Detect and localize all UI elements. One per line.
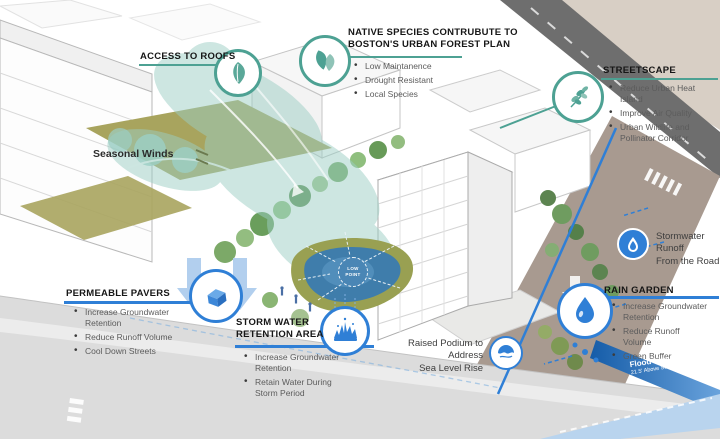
storm-water-title-line1: STORM WATER	[236, 317, 346, 329]
bullet-item: Cool Down Streets	[72, 346, 180, 357]
bullet-item: Increase Groundwater Retention	[72, 307, 180, 329]
rain-garden-title: RAIN GARDEN	[604, 285, 674, 297]
raised-podium-line1: Raised Podium to Address	[385, 338, 483, 363]
native-species-title-line2: BOSTON'S URBAN FOREST PLAN	[348, 39, 528, 51]
bullet-item: Retain Water During Storm Period	[242, 377, 350, 399]
raised-podium-label: Raised Podium to Address Sea Level Rise	[385, 338, 483, 375]
native-species-title-line1: NATIVE SPECIES CONTRUBUTE TO	[348, 27, 528, 39]
bullet-item: Improve Air Quality	[607, 108, 719, 119]
stormwater-runoff-line1: Stormwater Runoff	[656, 231, 720, 256]
storm-water-title-line2: RETENTION AREA	[236, 329, 346, 341]
stormwater-runoff-label: Stormwater Runoff From the Road	[656, 231, 720, 268]
native-species-callout: NATIVE SPECIES CONTRUBUTE TO BOSTON'S UR…	[348, 27, 528, 51]
stormwater-runoff-line2: From the Road	[656, 256, 720, 268]
droplet-icon	[617, 228, 649, 260]
storm-water-bullets: Increase Groundwater Retention Retain Wa…	[242, 352, 350, 402]
bullet-item: Reduce Runoff Volume	[610, 326, 710, 348]
access-to-roofs-title: ACCESS TO ROOFS	[140, 51, 235, 63]
permeable-pavers-bullets: Increase Groundwater Retention Reduce Ru…	[72, 307, 180, 360]
streetscape-bullets: Reduce Urban Heat Island Improve Air Qua…	[607, 83, 719, 146]
bullet-item: Local Species	[352, 89, 482, 100]
streetscape-title: STREETSCAPE	[603, 65, 676, 77]
bullet-item: Increase Groundwater Retention	[610, 301, 710, 323]
raised-podium-line2: Sea Level Rise	[385, 363, 483, 375]
urban-design-diagram: ACCESS TO ROOFS NATIVE SPECIES CONTRUBUT…	[0, 0, 720, 439]
paver-brick-icon	[189, 269, 243, 323]
bullet-item: Drought Resistant	[352, 75, 482, 86]
storm-water-callout: STORM WATER RETENTION AREA	[236, 317, 346, 341]
native-species-bullets: Low Maintanence Drought Resistant Local …	[352, 61, 482, 103]
streetscape-underline	[601, 78, 718, 80]
seasonal-winds-label: Seasonal Winds	[93, 148, 173, 160]
branch-leaves-icon	[552, 71, 604, 123]
bullet-item: Reduce Urban Heat Island	[607, 83, 719, 105]
bullet-item: Increase Groundwater Retention	[242, 352, 350, 374]
permeable-pavers-title: PERMEABLE PAVERS	[66, 288, 170, 300]
low-point-marker: LOW POINT	[338, 257, 368, 287]
double-leaf-icon	[299, 35, 351, 87]
bullet-item: Low Maintanence	[352, 61, 482, 72]
bullet-item: Urban Wildlife and Pollinator Corridor	[607, 122, 719, 144]
bullet-item: Reduce Runoff Volume	[72, 332, 180, 343]
sea-level-wave-icon	[489, 336, 523, 370]
